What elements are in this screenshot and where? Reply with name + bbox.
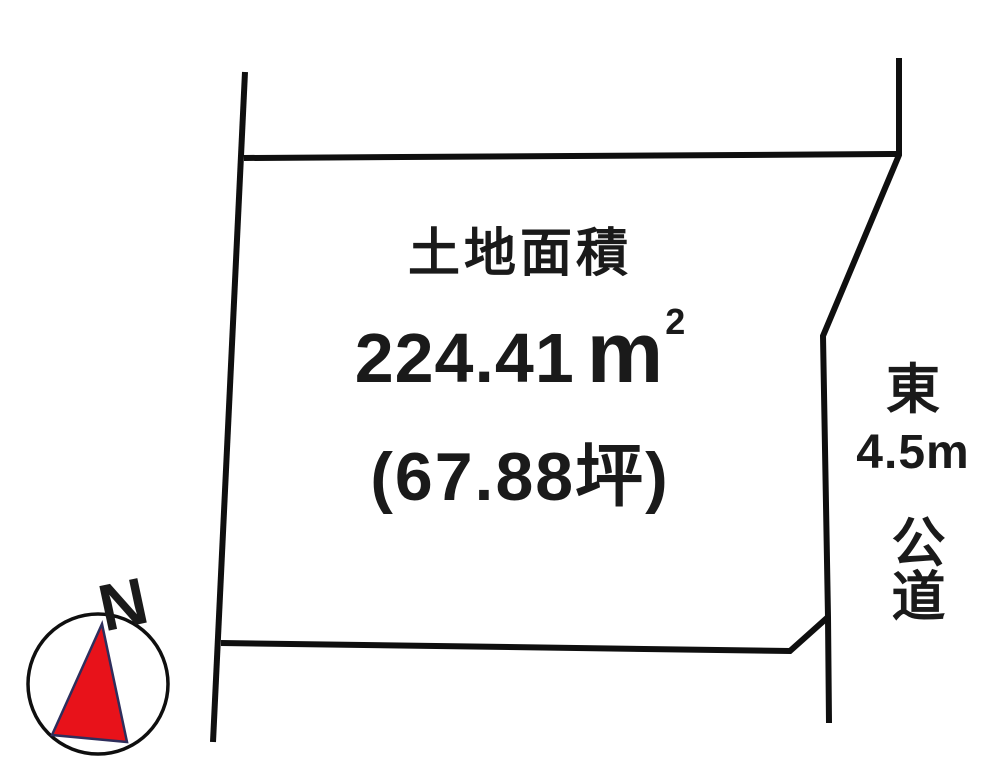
compass-north-label: N [82, 564, 164, 643]
road-type-label: 公道 [886, 514, 940, 634]
area-number: 224.41 [355, 323, 575, 393]
plot-north-boundary-line [244, 154, 899, 158]
land-area-tsubo: (67.88坪) [250, 443, 790, 511]
road-width-label: 4.5m [843, 429, 983, 477]
road-direction-label: 東 [858, 363, 968, 417]
land-area-title: 土地面積 [270, 227, 770, 282]
land-area-sqm: 224.41 m 2 [230, 310, 810, 396]
plot-south-boundary-line [221, 617, 828, 651]
area-exponent: 2 [665, 304, 685, 340]
land-plot-diagram: 土地面積 224.41 m 2 (67.88坪) 東 4.5m 公道 N [0, 0, 1000, 783]
area-unit: m [587, 310, 663, 396]
